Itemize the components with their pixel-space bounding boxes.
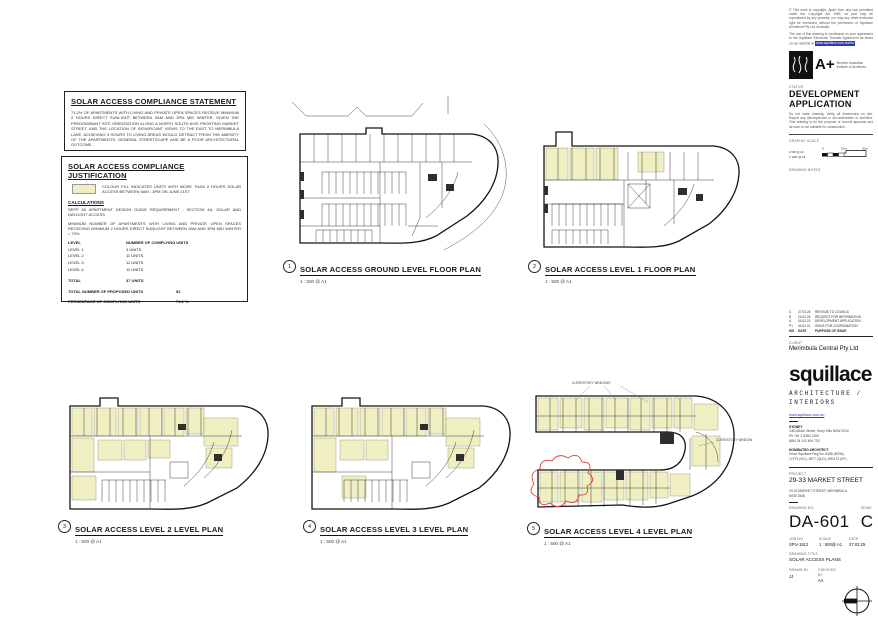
eta-note: The use of this drawing is conditional o… [789,32,873,46]
proposed-units-row: TOTAL NUMBER OF PROPOSED UNITS 52 [68,289,241,296]
drawing-no: DA-601 [789,511,850,533]
plan-title: SOLAR ACCESS LEVEL 4 LEVEL PLAN [544,527,692,538]
divider-dash [789,421,798,422]
plan-number-badge: 1 [283,260,296,273]
percentage-row: PERCENTAGE OF COMPLYING UNITS 71.2 % [68,299,241,306]
plan-label-level1: 2 SOLAR ACCESS LEVEL 1 FLOOR PLAN 1 : 50… [528,259,696,284]
level1-floor-plan-drawing [526,86,758,258]
level2-floor-plan-drawing [56,382,284,518]
calculations-heading: CALCULATIONS [68,200,241,205]
disclaimer: Do not scale drawing. Verify all dimensi… [789,112,873,129]
plan-label-level3: 4 SOLAR ACCESS LEVEL 3 LEVEL PLAN 1 : 50… [303,519,468,544]
plan-scale: 1 : 500 @ A1 [320,539,468,544]
plan-title: SOLAR ACCESS LEVEL 3 LEVEL PLAN [320,525,468,536]
client-label: CLIENT [789,341,873,345]
eta-link[interactable]: www.squillace.com.au/eta [815,41,855,46]
drawn-by: JJ [789,574,812,579]
issue-value: C [861,511,873,533]
revision-table: C 27.03.25 REISSUE TO COUNCIL B 24.04.24… [789,310,873,337]
clerestory-windows-annotation: CLERESTORY WINDOWS [572,381,610,385]
copyright-note: © This work is copyright. Apart from any… [789,8,873,29]
plan-label-ground: 1 SOLAR ACCESS GROUND LEVEL FLOOR PLAN 1… [283,259,481,284]
plan-title: SOLAR ACCESS LEVEL 1 FLOOR PLAN [545,265,696,276]
core-hatch [300,172,304,181]
plan-label-level4: 5 SOLAR ACCESS LEVEL 4 LEVEL PLAN 1 : 50… [527,521,692,546]
plan-title: SOLAR ACCESS LEVEL 2 LEVEL PLAN [75,525,223,536]
checked-by: AA [818,578,841,583]
justification-title: SOLAR ACCESS COMPLIANCE JUSTIFICATION [68,162,241,180]
drawing-title: SOLAR ACCESS PLANS [789,557,873,563]
date-value: 27.03.25 [849,542,873,547]
level3-floor-plan-drawing [298,382,526,518]
website-link[interactable]: www.squillace.com.au [789,413,824,417]
job-no: SPU-1912 [789,542,813,547]
plan-scale: 1 : 500 @ A1 [300,279,481,284]
aplus-mark: A+ [815,57,835,72]
table-total-row: TOTAL 37 UNITS [68,278,241,285]
svg-text:1:1000 @ A3: 1:1000 @ A3 [789,155,806,159]
north-point-icon [841,585,873,617]
drawing-no-label: DRAWING NO. [789,506,850,510]
svg-text:10m: 10m [841,147,847,151]
svg-text:1:500 @ A1: 1:500 @ A1 [789,150,804,154]
issue-label: ISSUE [861,506,873,510]
table-row: LEVEL 2 11 UNITS [68,253,241,260]
plan-title: SOLAR ACCESS GROUND LEVEL FLOOR PLAN [300,265,481,276]
graphic-scale-bar: 0 10m 20m 1:500 @ A1 1:1000 @ A3 [789,145,873,162]
legend-row: COLOUR FILL INDICATES UNITS WITH MORE TH… [68,184,241,195]
plan-number-badge: 2 [528,260,541,273]
plan-number-badge: 3 [58,520,71,533]
compliance-statement-box: SOLAR ACCESS COMPLIANCE STATEMENT 71.2% … [64,91,246,151]
solar-legend-swatch [72,184,96,194]
table-row: LEVEL 4 11 UNITS [68,267,241,274]
client-name: Merimbula Central Pty Ltd [789,346,873,354]
table-header-row: LEVEL NUMBER OF COMPLYING UNITS [68,240,241,247]
institute-logo: A+ Member Australian Institute of Archit… [789,51,873,79]
plan-number-badge: 4 [303,520,316,533]
project-label: PROJECT [789,472,873,476]
statement-body: 71.2% OF APARTMENTS WITH LIVING AND PRIV… [71,110,239,148]
drawing-title-label: DRAWING TITLE [789,552,873,556]
drawing-notes-label: DRAWING NOTES [789,168,873,172]
complying-units-table: LEVEL NUMBER OF COMPLYING UNITS LEVEL 1 … [68,240,241,306]
drawing-number-row: DRAWING NO. DA-601 ISSUE C [789,506,873,534]
table-row: LEVEL 3 11 UNITS [68,260,241,267]
plan-label-level2: 3 SOLAR ACCESS LEVEL 2 LEVEL PLAN 1 : 50… [58,519,223,544]
plan-scale: 1 : 500 @ A1 [544,541,692,546]
project-address: 29-33 MARKET STREET, MERIMBULA NSW 2548 [789,489,873,499]
office-address: SYDNEY 1/80 Albion Street, Surry Hills N… [789,425,873,444]
plan-scale: 1 : 500 @ A1 [75,539,223,544]
level4-floor-plan-drawing: CLERESTORY WINDOWS CLERESTORY WINDOWS [520,374,752,522]
plan-number-badge: 5 [527,522,540,535]
title-block: © This work is copyright. Apart from any… [789,8,873,584]
clerestory-windows-annotation: CLERESTORY WINDOWS [716,438,752,442]
architects-figures-icon [789,51,813,79]
divider-dash [789,502,798,503]
table-row: LEVEL 1 4 UNITS [68,247,241,254]
svg-text:20m: 20m [862,147,868,151]
drawn-checked-row: DRAWN BY JJ CHECKED BY AA [789,568,841,583]
ground-floor-plan-drawing [280,86,508,258]
scale-value: 1 : 500@ A1 [819,542,843,547]
calculations-para1: SEPP 65 APARTMENT DESIGN GUIDE REQUIREME… [68,207,241,218]
graphic-scale-label: GRAPHIC SCALE [789,139,873,143]
project-name: 29-33 MARKET STREET [789,477,873,486]
member-text: Member Australian Institute of Architect… [837,61,873,69]
job-meta-row: JOB NO. SPU-1912 SCALE 1 : 500@ A1 DATE … [789,537,873,548]
statement-title: SOLAR ACCESS COMPLIANCE STATEMENT [71,97,239,106]
compliance-justification-box: SOLAR ACCESS COMPLIANCE JUSTIFICATION CO… [61,156,248,302]
legend-text: COLOUR FILL INDICATES UNITS WITH MORE TH… [102,184,241,195]
svg-text:0: 0 [822,147,824,151]
squillace-logo: squillace [789,364,873,385]
calculations-para2: MINIMUM NUMBER OF APARTMENTS WITH LIVING… [68,221,241,237]
scale-bar-icon: 0 10m 20m 1:500 @ A1 1:1000 @ A3 [789,145,871,162]
plan-scale: 1 : 500 @ A1 [545,279,696,284]
status-value: DEVELOPMENT APPLICATION [789,90,873,109]
logo-subtitle: ARCHITECTURE / INTERIORS [789,389,873,407]
nominated-architect: NOMINATED ARCHITECT Vince Squillace Reg … [789,448,873,462]
revision-header-row: ISS DATE PURPOSE OF ISSUE [789,329,873,334]
